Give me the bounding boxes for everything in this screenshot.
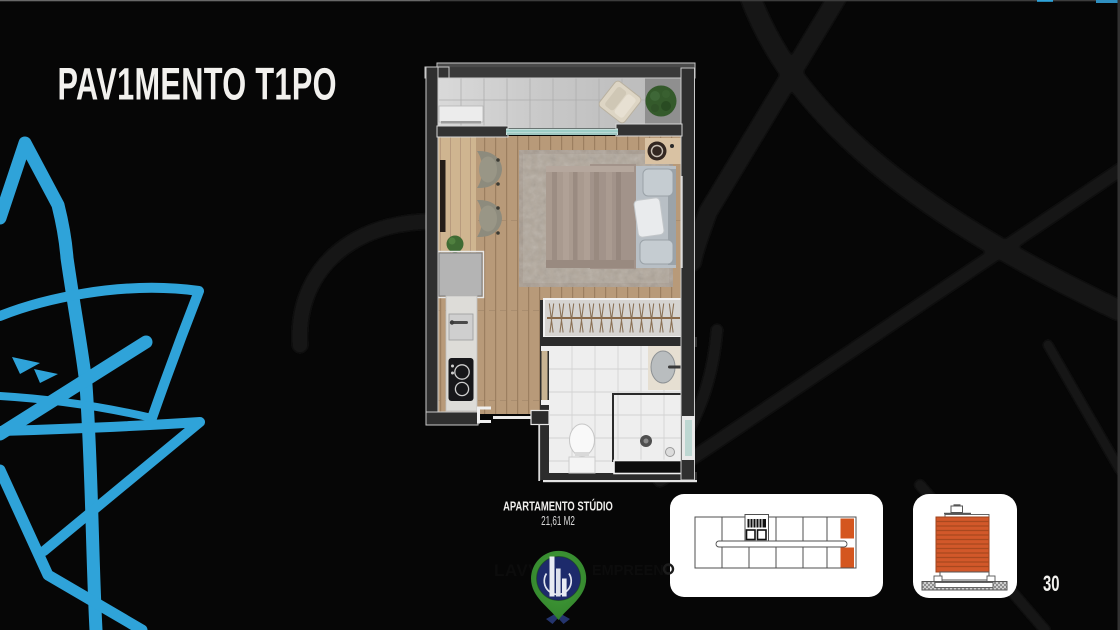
svg-text:30: 30 — [1043, 572, 1060, 597]
svg-text:21,61 M2: 21,61 M2 — [541, 514, 575, 528]
svg-text:PAV1MENTO T1PO: PAV1MENTO T1PO — [58, 60, 337, 110]
svg-text:APARTAMENTO STÚDIO: APARTAMENTO STÚDIO — [503, 499, 613, 514]
